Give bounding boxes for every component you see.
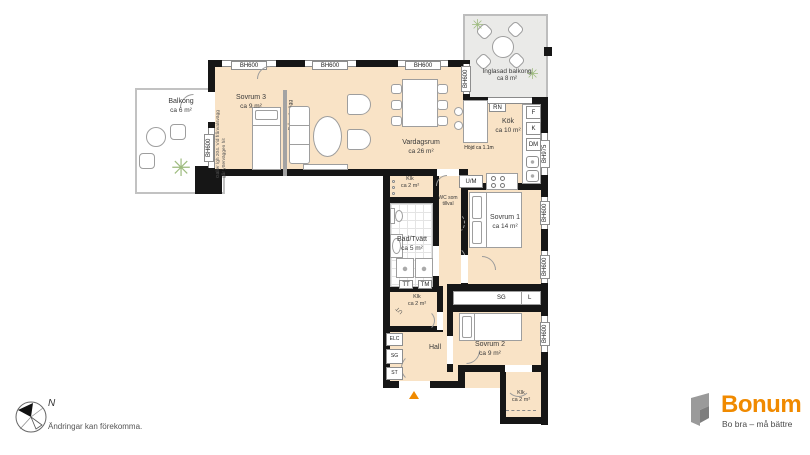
sofa-cushion-line bbox=[289, 125, 310, 126]
armchair-icon bbox=[347, 94, 371, 115]
window-height-label: BH600 bbox=[204, 134, 214, 162]
plant-icon bbox=[469, 17, 486, 34]
washer-label: TM bbox=[418, 280, 432, 289]
room-label-inglasad-balkong: Inglasad balkong ca 8 m² bbox=[475, 68, 539, 84]
window-height-label: BH600 bbox=[461, 66, 471, 92]
door-gap bbox=[437, 312, 443, 330]
oven-micro-label: U/M bbox=[459, 175, 483, 188]
floorplan-canvas: Frånvalsvägg Gäller lgh 204. Vid frånval… bbox=[0, 0, 810, 455]
coffee-table-icon bbox=[313, 116, 342, 157]
linen-closet-label: L bbox=[528, 295, 531, 301]
hook-icon bbox=[392, 192, 395, 195]
room-label-balkong: Balkong ca 6 m² bbox=[152, 98, 210, 115]
wall-segment bbox=[447, 284, 541, 291]
door-swing bbox=[414, 310, 435, 331]
sink-icon bbox=[526, 170, 539, 182]
room-label-bad-tvatt: Bad/Tvätt ca 5 m² bbox=[384, 236, 440, 253]
kitchen-island bbox=[463, 100, 488, 143]
door-swing bbox=[401, 354, 429, 382]
room-label-sovrum2: Sovrum 2 ca 9 m² bbox=[462, 341, 518, 358]
burner-icon bbox=[500, 183, 505, 188]
entrance-door-gap bbox=[399, 381, 430, 388]
wall-segment bbox=[458, 365, 548, 372]
stool-icon bbox=[454, 121, 463, 130]
chair-icon bbox=[391, 100, 402, 110]
room-label-klk-ovre: Klk ca 2 m² bbox=[394, 176, 426, 190]
wardrobe-label: SG bbox=[386, 349, 403, 364]
window-height-label: BH600 bbox=[312, 61, 348, 70]
wall-segment bbox=[500, 417, 545, 424]
electrical-cabinet-label: ELC bbox=[386, 333, 403, 346]
sink-icon bbox=[526, 156, 539, 168]
klk-dashed-line bbox=[506, 410, 536, 411]
armchair-icon bbox=[347, 129, 371, 150]
wall-segment bbox=[447, 305, 541, 312]
room-label-wc-tillval: WC som tillval bbox=[437, 195, 459, 208]
chair-icon bbox=[437, 100, 448, 110]
burner-icon bbox=[500, 176, 505, 181]
bonum-logo-text: Bonum bbox=[721, 391, 801, 419]
room-label-kok: Kök ca 10 m² bbox=[486, 118, 530, 135]
franval-note: Gäller lgh 204. Vid frånvalsvägg går ytt… bbox=[216, 102, 233, 178]
balcony-table-icon bbox=[146, 127, 166, 147]
disclaimer-text: Ändringar kan förekomma. bbox=[48, 422, 142, 431]
stool-icon bbox=[454, 107, 463, 116]
wall-segment bbox=[544, 47, 552, 56]
entrance-marker bbox=[409, 391, 419, 399]
chair-icon bbox=[437, 84, 448, 94]
dining-table-icon bbox=[402, 79, 438, 127]
bed-line bbox=[474, 313, 475, 341]
room-label-klk-mellan: Klk ca 2 m² bbox=[400, 294, 434, 308]
window-height-label: BH975 bbox=[540, 140, 550, 168]
chair-icon bbox=[437, 116, 448, 126]
glass-wall bbox=[546, 14, 548, 99]
door-gap bbox=[505, 365, 532, 372]
window-height-label: BH600 bbox=[540, 255, 550, 279]
wc-option-swing bbox=[443, 212, 465, 234]
pillow-icon bbox=[255, 110, 278, 120]
wall-segment bbox=[383, 169, 437, 176]
wall-segment bbox=[383, 326, 443, 332]
dryer-icon bbox=[396, 258, 414, 278]
room-label-vardagsrum: Vardagsrum ca 26 m² bbox=[390, 139, 452, 156]
balcony-chair-icon bbox=[170, 124, 186, 140]
glass-wall bbox=[463, 14, 548, 16]
bed-line bbox=[252, 125, 281, 126]
cleaning-cabinet-label: ST bbox=[386, 367, 403, 380]
room-label-sovrum3: Sovrum 3 ca 9 m² bbox=[222, 94, 280, 111]
north-compass-icon bbox=[12, 396, 52, 436]
burner-icon bbox=[491, 183, 496, 188]
bonum-logo-icon bbox=[688, 392, 718, 430]
burner-icon bbox=[491, 176, 496, 181]
glass-wall bbox=[463, 14, 465, 64]
window-height-label: BH600 bbox=[540, 201, 550, 225]
dishwasher-label: DM bbox=[526, 138, 541, 151]
north-label: N bbox=[48, 398, 55, 409]
room-label-klk-nedre: Klk ca 2 m² bbox=[504, 390, 538, 404]
plant-icon bbox=[168, 156, 194, 182]
island-height-note: Höjd ca 1.1m bbox=[456, 146, 502, 151]
balcony-chair-icon bbox=[139, 153, 155, 169]
dryer-label: TT bbox=[399, 280, 413, 289]
pillow-icon bbox=[462, 316, 472, 338]
toilet-icon bbox=[395, 210, 403, 222]
washer-icon bbox=[415, 258, 433, 278]
chair-icon bbox=[391, 116, 402, 126]
sofa-cushion-line bbox=[289, 144, 310, 145]
sofa-icon bbox=[289, 106, 310, 164]
window-height-label: BH600 bbox=[540, 322, 550, 346]
tv-bench-icon bbox=[303, 164, 348, 170]
sliding-wardrobe-label: SG bbox=[497, 295, 506, 301]
window-height-label: BH600 bbox=[405, 61, 441, 70]
room-label-sovrum1: Sovrum 1 ca 14 m² bbox=[477, 214, 533, 231]
room-label-hall: Hall bbox=[421, 344, 449, 353]
window-label-rn: RN bbox=[489, 103, 506, 112]
balcony-table-icon bbox=[492, 36, 514, 58]
chair-icon bbox=[391, 84, 402, 94]
wall-segment bbox=[208, 169, 391, 176]
bonum-tagline: Bo bra – må bättre bbox=[722, 419, 792, 429]
closet-divider bbox=[521, 291, 522, 305]
franvalsvagg-wall bbox=[283, 90, 287, 176]
